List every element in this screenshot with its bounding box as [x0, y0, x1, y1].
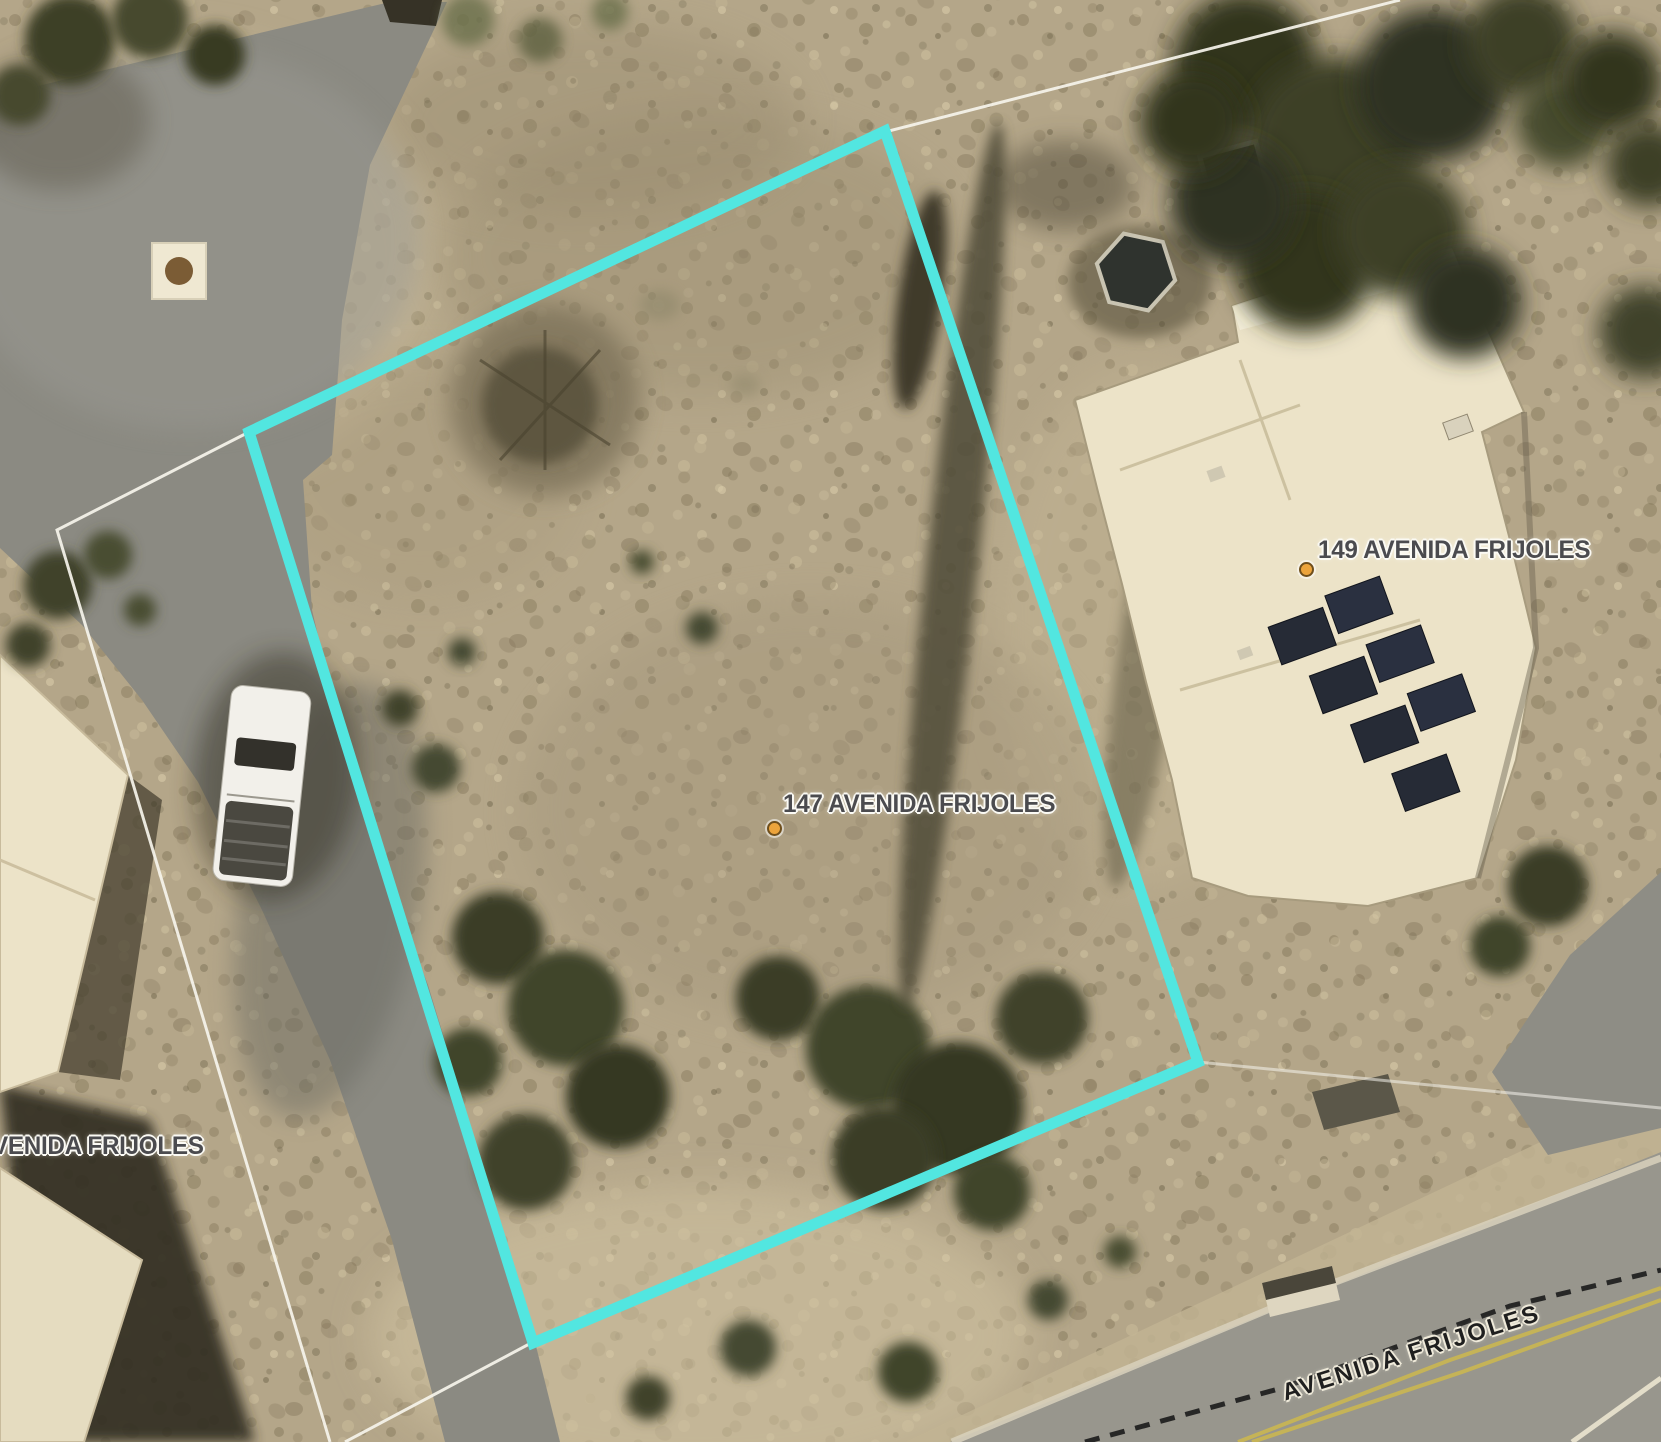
- parcel-label-149: 149 AVENIDA FRIJOLES: [1318, 538, 1590, 563]
- parcel-label-147: 147 AVENIDA FRIJOLES: [783, 792, 1055, 817]
- aerial-map-canvas[interactable]: 147 AVENIDA FRIJOLES 149 AVENIDA FRIJOLE…: [0, 0, 1661, 1442]
- parcel-boundary-lines: [57, 0, 1661, 1442]
- parcel-marker-149[interactable]: [1299, 562, 1314, 577]
- parcel-marker-147[interactable]: [767, 821, 782, 836]
- gis-overlay-layer: [0, 0, 1661, 1442]
- parcel-label-partial: VENIDA FRIJOLES: [0, 1134, 204, 1159]
- selected-parcel-outline-147[interactable]: [249, 131, 1198, 1343]
